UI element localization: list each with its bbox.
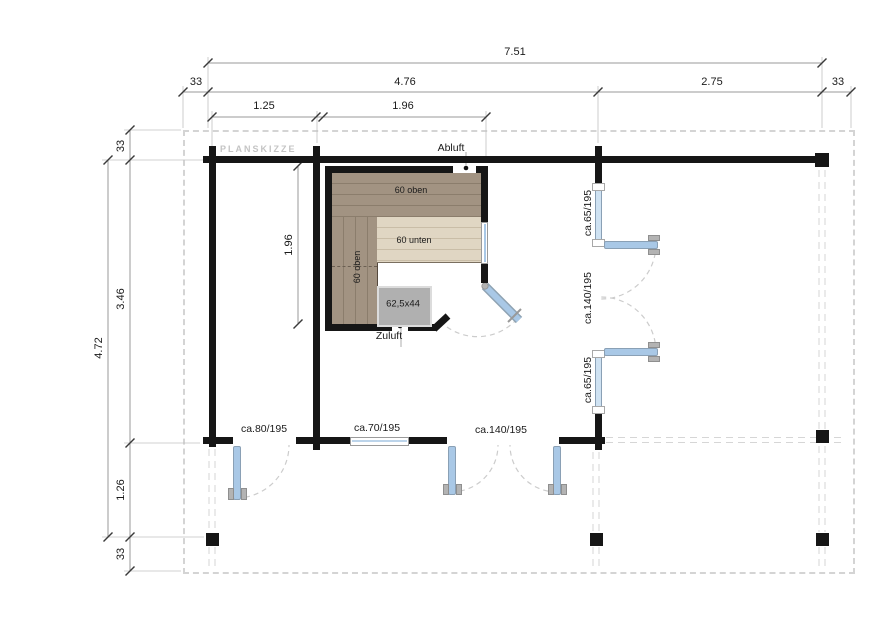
jamb-cap (592, 406, 605, 414)
wall-south-seg3 (407, 437, 447, 444)
wall-north (203, 156, 816, 163)
sauna-wall-right-lower (481, 262, 488, 283)
post-south-center (590, 533, 603, 546)
door-handle (561, 484, 567, 495)
door-handle (443, 484, 449, 495)
post-northeast (815, 153, 829, 167)
sauna-wall-right-upper (481, 166, 488, 222)
wall-south-seg2 (296, 437, 350, 444)
wall-south-seg1 (203, 437, 233, 444)
opening-right-double-label: ca.140/195 (582, 272, 594, 324)
bench-lower-label: 60 unten (396, 235, 431, 245)
zuluft-label: Zuluft (376, 330, 402, 342)
dim-room-left-width: 1.25 (253, 100, 274, 112)
roof-outline (183, 130, 855, 574)
wall-interior-2-lower (595, 410, 602, 450)
dim-width-right: 2.75 (701, 76, 722, 88)
glass-panel-top (595, 190, 602, 240)
door-leaf-terrace-upper (604, 241, 658, 249)
plan-title: PLANSKIZZE (220, 144, 297, 154)
door-leaf-front-80 (233, 446, 241, 500)
dim-width-main: 4.76 (394, 76, 415, 88)
opening-front-double-label: ca.140/195 (475, 424, 527, 436)
wall-interior-2-upper (595, 146, 602, 188)
dim-overhang-top: 33 (115, 140, 127, 152)
floor-plan: PLANSKIZZE Abluft Zuluft 60 oben 60 unte… (0, 0, 887, 637)
dim-height-main: 3.46 (115, 288, 127, 309)
door-handle (228, 488, 234, 500)
post-southeast (816, 533, 829, 546)
wall-south-seg4 (559, 437, 605, 444)
opening-front-window-label: ca.70/195 (354, 422, 400, 434)
opening-right-panel-bottom-label: ca.65/195 (582, 357, 594, 403)
door-leaf-front-double-left (448, 446, 456, 495)
door-leaf-terrace-lower (604, 348, 658, 356)
door-handle (648, 342, 660, 348)
dim-sauna-width: 1.96 (392, 100, 413, 112)
sauna-bench-upper (332, 173, 481, 219)
door-handle (648, 249, 660, 255)
sauna-wall-top-left (325, 166, 453, 173)
abluft-label: Abluft (438, 142, 465, 154)
dim-porch-depth: 1.26 (115, 479, 127, 500)
opening-front-door-label: ca.80/195 (241, 423, 287, 435)
dim-overhang-left: 33 (190, 76, 202, 88)
door-handle (456, 484, 462, 495)
door-handle (648, 235, 660, 241)
sauna-window (481, 222, 488, 264)
opening-right-panel-top-label: ca.65/195 (582, 190, 594, 236)
glass-panel-bottom (595, 357, 602, 407)
bench-upper-label: 60 oben (395, 185, 428, 195)
door-handle (241, 488, 247, 500)
front-window (350, 437, 409, 446)
door-leaf-front-double-right (553, 446, 561, 495)
door-handle (648, 356, 660, 362)
bench-side-label: 60 oben (352, 251, 362, 284)
dim-overhang-right: 33 (832, 76, 844, 88)
dim-overhang-bottom: 33 (115, 548, 127, 560)
sauna-wall-left (325, 166, 332, 331)
post-east-mid (816, 430, 829, 443)
door-handle (548, 484, 554, 495)
dim-sauna-height: 1.96 (283, 234, 295, 255)
wall-interior-1 (313, 146, 320, 450)
dim-total-width: 7.51 (504, 46, 525, 58)
wall-west (209, 146, 216, 447)
heater-label: 62,5x44 (386, 299, 420, 310)
post-southwest (206, 533, 219, 546)
dim-total-height: 4.72 (93, 337, 105, 358)
